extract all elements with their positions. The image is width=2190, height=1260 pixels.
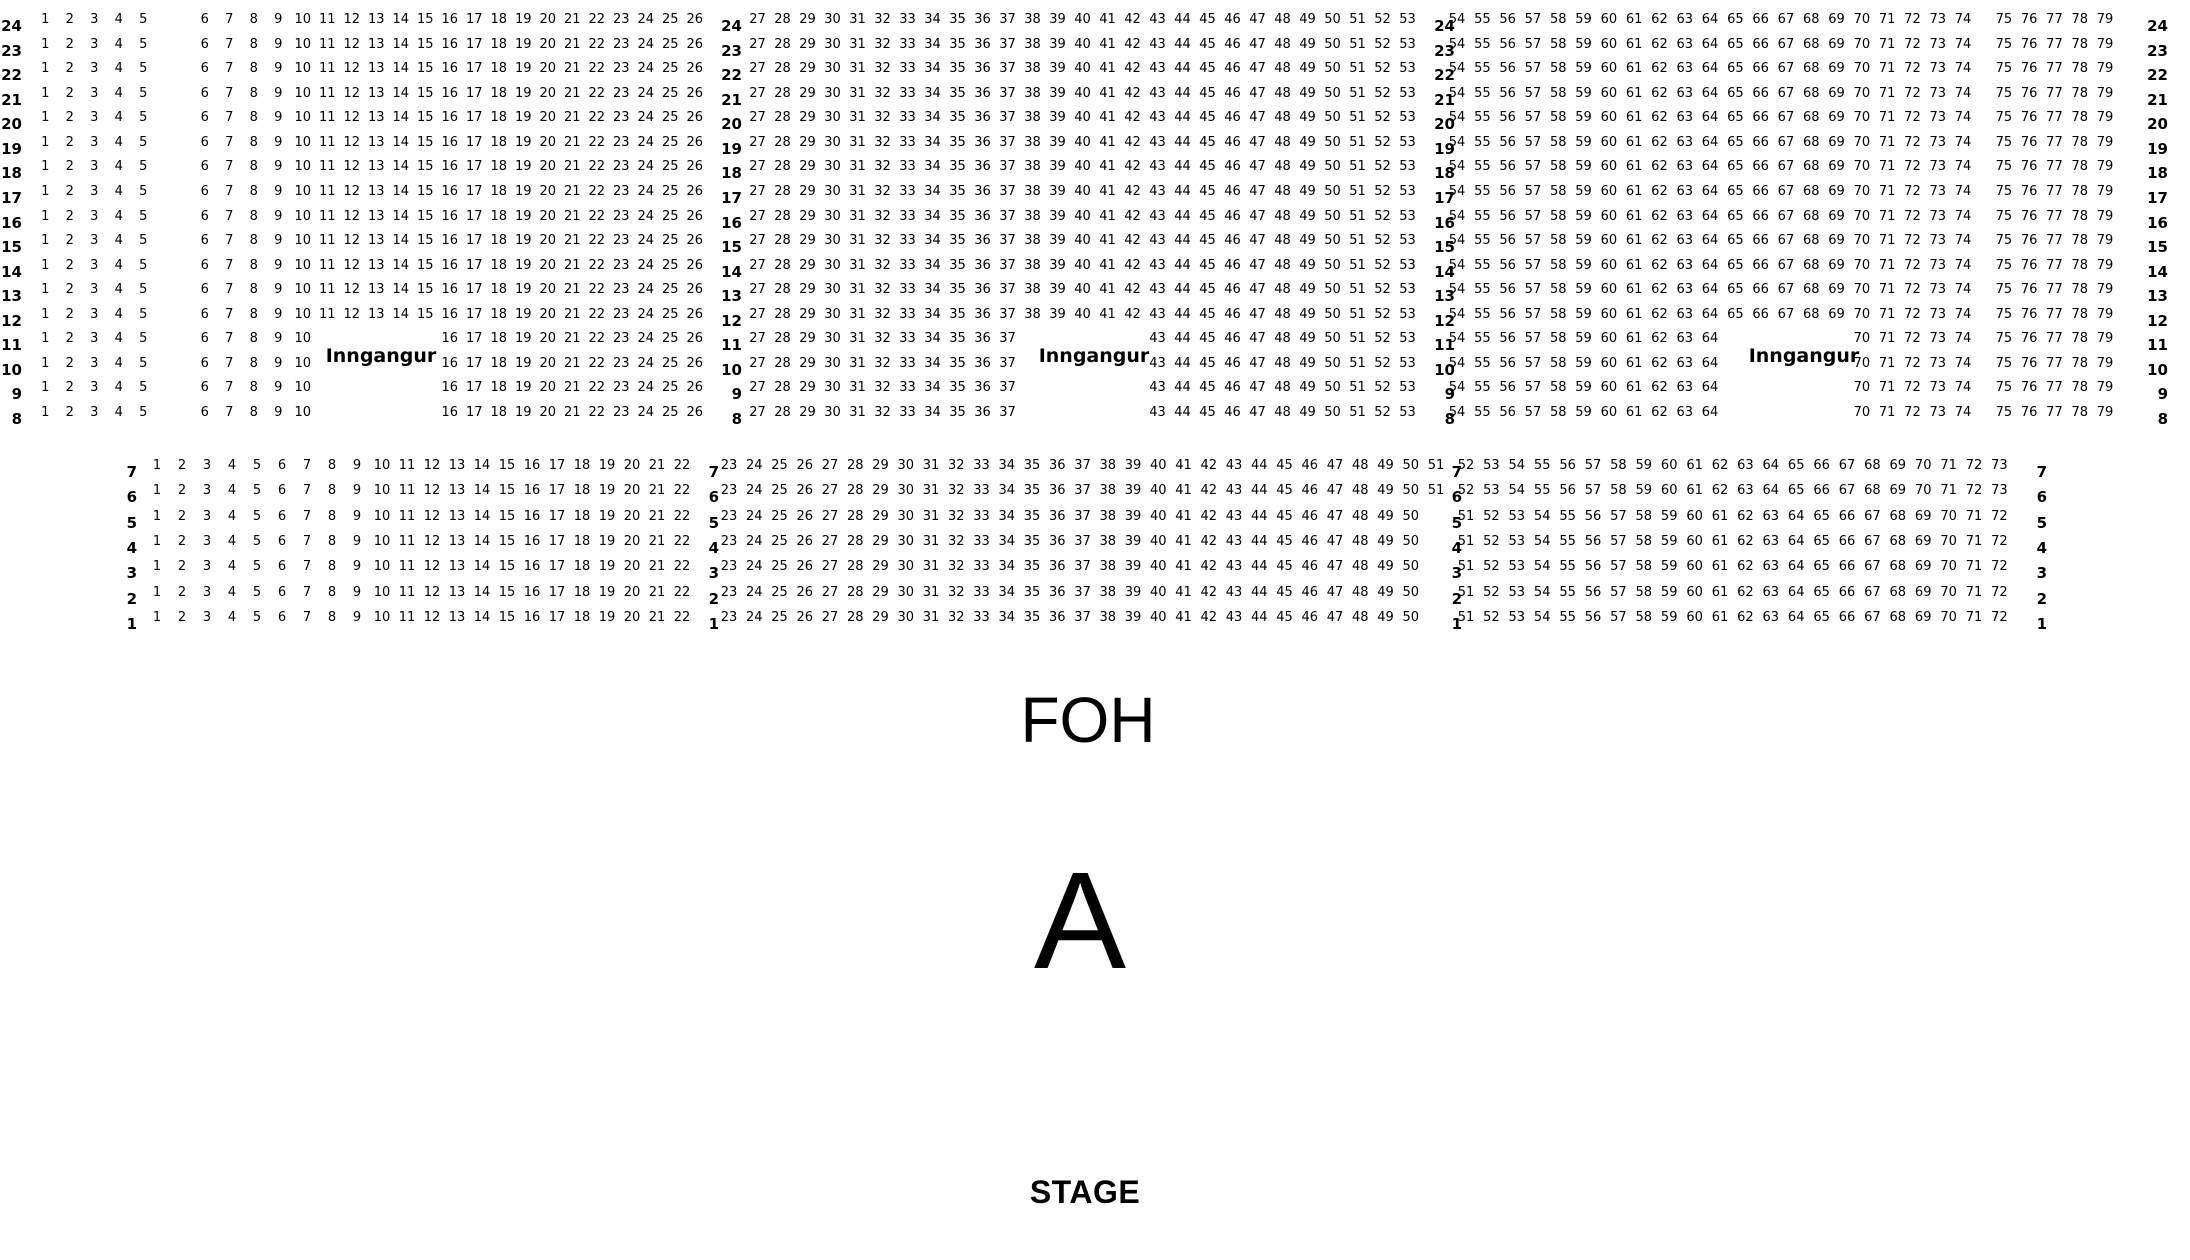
seat-22-45[interactable]: 45 xyxy=(1195,62,1220,75)
seat-14-44[interactable]: 44 xyxy=(1170,259,1195,272)
seat-4-51[interactable]: 51 xyxy=(1453,535,1478,548)
seat-23-59[interactable]: 59 xyxy=(1571,38,1596,51)
seat-13-14[interactable]: 14 xyxy=(389,283,414,296)
seat-8-36[interactable]: 36 xyxy=(970,406,995,419)
seat-19-36[interactable]: 36 xyxy=(970,136,995,149)
seat-5-29[interactable]: 29 xyxy=(868,510,893,523)
seat-6-10[interactable]: 10 xyxy=(370,484,395,497)
seat-6-39[interactable]: 39 xyxy=(1120,484,1145,497)
seat-24-25[interactable]: 25 xyxy=(658,13,683,26)
seat-10-59[interactable]: 59 xyxy=(1571,357,1596,370)
seat-23-32[interactable]: 32 xyxy=(870,38,895,51)
seat-6-44[interactable]: 44 xyxy=(1247,484,1272,497)
seat-3-53[interactable]: 53 xyxy=(1504,560,1529,573)
seat-17-68[interactable]: 68 xyxy=(1799,185,1824,198)
seat-15-32[interactable]: 32 xyxy=(870,234,895,247)
seat-3-51[interactable]: 51 xyxy=(1453,560,1478,573)
seat-20-65[interactable]: 65 xyxy=(1723,111,1748,124)
seat-4-11[interactable]: 11 xyxy=(395,535,420,548)
seat-20-6[interactable]: 6 xyxy=(193,111,218,124)
seat-8-50[interactable]: 50 xyxy=(1320,406,1345,419)
seat-5-51[interactable]: 51 xyxy=(1453,510,1478,523)
seat-2-66[interactable]: 66 xyxy=(1834,586,1859,599)
seat-6-12[interactable]: 12 xyxy=(420,484,445,497)
seat-3-27[interactable]: 27 xyxy=(817,560,842,573)
seat-4-71[interactable]: 71 xyxy=(1961,535,1986,548)
seat-18-79[interactable]: 79 xyxy=(2092,160,2117,173)
seat-2-70[interactable]: 70 xyxy=(1936,586,1961,599)
seat-1-60[interactable]: 60 xyxy=(1682,611,1707,624)
seat-21-43[interactable]: 43 xyxy=(1145,87,1170,100)
seat-18-31[interactable]: 31 xyxy=(845,160,870,173)
seat-8-49[interactable]: 49 xyxy=(1295,406,1320,419)
seat-15-62[interactable]: 62 xyxy=(1647,234,1672,247)
seat-17-43[interactable]: 43 xyxy=(1145,185,1170,198)
seat-23-72[interactable]: 72 xyxy=(1900,38,1925,51)
seat-21-46[interactable]: 46 xyxy=(1220,87,1245,100)
seat-4-42[interactable]: 42 xyxy=(1196,535,1221,548)
seat-7-36[interactable]: 36 xyxy=(1045,459,1070,472)
seat-14-74[interactable]: 74 xyxy=(1950,259,1975,272)
seat-23-28[interactable]: 28 xyxy=(770,38,795,51)
seat-3-21[interactable]: 21 xyxy=(645,560,670,573)
seat-4-26[interactable]: 26 xyxy=(792,535,817,548)
seat-10-21[interactable]: 21 xyxy=(560,357,585,370)
seat-4-60[interactable]: 60 xyxy=(1682,535,1707,548)
seat-18-44[interactable]: 44 xyxy=(1170,160,1195,173)
seat-10-71[interactable]: 71 xyxy=(1875,357,1900,370)
seat-19-70[interactable]: 70 xyxy=(1849,136,1874,149)
seat-24-40[interactable]: 40 xyxy=(1070,13,1095,26)
seat-8-71[interactable]: 71 xyxy=(1875,406,1900,419)
seat-21-27[interactable]: 27 xyxy=(745,87,770,100)
seat-17-74[interactable]: 74 xyxy=(1950,185,1975,198)
seat-14-61[interactable]: 61 xyxy=(1622,259,1647,272)
seat-14-57[interactable]: 57 xyxy=(1520,259,1545,272)
seat-21-61[interactable]: 61 xyxy=(1622,87,1647,100)
seat-2-6[interactable]: 6 xyxy=(270,586,295,599)
seat-1-11[interactable]: 11 xyxy=(395,611,420,624)
seat-20-44[interactable]: 44 xyxy=(1170,111,1195,124)
seat-6-53[interactable]: 53 xyxy=(1479,484,1504,497)
seat-3-30[interactable]: 30 xyxy=(893,560,918,573)
seat-10-19[interactable]: 19 xyxy=(511,357,536,370)
seat-9-2[interactable]: 2 xyxy=(58,381,83,394)
seat-19-25[interactable]: 25 xyxy=(658,136,683,149)
seat-6-43[interactable]: 43 xyxy=(1221,484,1246,497)
seat-10-50[interactable]: 50 xyxy=(1320,357,1345,370)
seat-13-34[interactable]: 34 xyxy=(920,283,945,296)
seat-17-47[interactable]: 47 xyxy=(1245,185,1270,198)
seat-12-28[interactable]: 28 xyxy=(770,308,795,321)
seat-21-26[interactable]: 26 xyxy=(683,87,708,100)
seat-18-65[interactable]: 65 xyxy=(1723,160,1748,173)
seat-24-76[interactable]: 76 xyxy=(2017,13,2042,26)
seat-7-57[interactable]: 57 xyxy=(1580,459,1605,472)
seat-16-15[interactable]: 15 xyxy=(413,210,438,223)
seat-24-14[interactable]: 14 xyxy=(389,13,414,26)
seat-15-24[interactable]: 24 xyxy=(634,234,659,247)
seat-20-32[interactable]: 32 xyxy=(870,111,895,124)
seat-22-49[interactable]: 49 xyxy=(1295,62,1320,75)
seat-8-3[interactable]: 3 xyxy=(82,406,107,419)
seat-11-29[interactable]: 29 xyxy=(795,332,820,345)
seat-15-9[interactable]: 9 xyxy=(266,234,291,247)
seat-12-51[interactable]: 51 xyxy=(1345,308,1370,321)
seat-12-43[interactable]: 43 xyxy=(1145,308,1170,321)
seat-14-22[interactable]: 22 xyxy=(585,259,610,272)
seat-9-48[interactable]: 48 xyxy=(1270,381,1295,394)
seat-14-13[interactable]: 13 xyxy=(364,259,389,272)
seat-10-28[interactable]: 28 xyxy=(770,357,795,370)
seat-21-48[interactable]: 48 xyxy=(1270,87,1295,100)
seat-20-48[interactable]: 48 xyxy=(1270,111,1295,124)
seat-2-29[interactable]: 29 xyxy=(868,586,893,599)
seat-1-52[interactable]: 52 xyxy=(1479,611,1504,624)
seat-23-7[interactable]: 7 xyxy=(217,38,242,51)
seat-22-22[interactable]: 22 xyxy=(585,62,610,75)
seat-9-77[interactable]: 77 xyxy=(2042,381,2067,394)
seat-8-56[interactable]: 56 xyxy=(1495,406,1520,419)
seat-24-12[interactable]: 12 xyxy=(340,13,365,26)
seat-24-3[interactable]: 3 xyxy=(82,13,107,26)
seat-3-23[interactable]: 23 xyxy=(716,560,741,573)
seat-12-76[interactable]: 76 xyxy=(2017,308,2042,321)
seat-15-40[interactable]: 40 xyxy=(1070,234,1095,247)
seat-7-1[interactable]: 1 xyxy=(145,459,170,472)
seat-23-3[interactable]: 3 xyxy=(82,38,107,51)
seat-4-72[interactable]: 72 xyxy=(1987,535,2012,548)
seat-3-2[interactable]: 2 xyxy=(170,560,195,573)
seat-9-9[interactable]: 9 xyxy=(266,381,291,394)
seat-18-2[interactable]: 2 xyxy=(58,160,83,173)
seat-4-10[interactable]: 10 xyxy=(370,535,395,548)
seat-23-69[interactable]: 69 xyxy=(1824,38,1849,51)
seat-12-30[interactable]: 30 xyxy=(820,308,845,321)
seat-24-18[interactable]: 18 xyxy=(487,13,512,26)
seat-20-58[interactable]: 58 xyxy=(1546,111,1571,124)
seat-6-15[interactable]: 15 xyxy=(495,484,520,497)
seat-18-26[interactable]: 26 xyxy=(683,160,708,173)
seat-18-37[interactable]: 37 xyxy=(995,160,1020,173)
seat-13-44[interactable]: 44 xyxy=(1170,283,1195,296)
seat-9-29[interactable]: 29 xyxy=(795,381,820,394)
seat-7-32[interactable]: 32 xyxy=(944,459,969,472)
seat-1-45[interactable]: 45 xyxy=(1272,611,1297,624)
seat-21-18[interactable]: 18 xyxy=(487,87,512,100)
seat-1-27[interactable]: 27 xyxy=(817,611,842,624)
seat-2-61[interactable]: 61 xyxy=(1707,586,1732,599)
seat-7-26[interactable]: 26 xyxy=(792,459,817,472)
seat-12-27[interactable]: 27 xyxy=(745,308,770,321)
seat-16-57[interactable]: 57 xyxy=(1520,210,1545,223)
seat-18-32[interactable]: 32 xyxy=(870,160,895,173)
seat-18-62[interactable]: 62 xyxy=(1647,160,1672,173)
seat-6-6[interactable]: 6 xyxy=(270,484,295,497)
seat-14-18[interactable]: 18 xyxy=(487,259,512,272)
seat-22-68[interactable]: 68 xyxy=(1799,62,1824,75)
seat-2-3[interactable]: 3 xyxy=(195,586,220,599)
seat-1-40[interactable]: 40 xyxy=(1146,611,1171,624)
seat-8-52[interactable]: 52 xyxy=(1370,406,1395,419)
seat-4-35[interactable]: 35 xyxy=(1019,535,1044,548)
seat-13-41[interactable]: 41 xyxy=(1095,283,1120,296)
seat-16-71[interactable]: 71 xyxy=(1875,210,1900,223)
seat-5-46[interactable]: 46 xyxy=(1297,510,1322,523)
seat-24-31[interactable]: 31 xyxy=(845,13,870,26)
seat-20-50[interactable]: 50 xyxy=(1320,111,1345,124)
seat-20-59[interactable]: 59 xyxy=(1571,111,1596,124)
seat-15-75[interactable]: 75 xyxy=(1991,234,2016,247)
seat-24-32[interactable]: 32 xyxy=(870,13,895,26)
seat-5-23[interactable]: 23 xyxy=(716,510,741,523)
seat-4-21[interactable]: 21 xyxy=(645,535,670,548)
seat-5-31[interactable]: 31 xyxy=(918,510,943,523)
seat-7-4[interactable]: 4 xyxy=(220,459,245,472)
seat-15-54[interactable]: 54 xyxy=(1444,234,1469,247)
seat-18-11[interactable]: 11 xyxy=(315,160,340,173)
seat-5-55[interactable]: 55 xyxy=(1555,510,1580,523)
seat-19-61[interactable]: 61 xyxy=(1622,136,1647,149)
seat-17-34[interactable]: 34 xyxy=(920,185,945,198)
seat-22-76[interactable]: 76 xyxy=(2017,62,2042,75)
seat-9-3[interactable]: 3 xyxy=(82,381,107,394)
seat-12-77[interactable]: 77 xyxy=(2042,308,2067,321)
seat-23-43[interactable]: 43 xyxy=(1145,38,1170,51)
seat-20-36[interactable]: 36 xyxy=(970,111,995,124)
seat-15-10[interactable]: 10 xyxy=(291,234,316,247)
seat-2-17[interactable]: 17 xyxy=(545,586,570,599)
seat-16-20[interactable]: 20 xyxy=(536,210,561,223)
seat-1-43[interactable]: 43 xyxy=(1221,611,1246,624)
seat-7-29[interactable]: 29 xyxy=(868,459,893,472)
seat-22-48[interactable]: 48 xyxy=(1270,62,1295,75)
seat-4-32[interactable]: 32 xyxy=(944,535,969,548)
seat-18-72[interactable]: 72 xyxy=(1900,160,1925,173)
seat-16-17[interactable]: 17 xyxy=(462,210,487,223)
seat-16-40[interactable]: 40 xyxy=(1070,210,1095,223)
seat-12-6[interactable]: 6 xyxy=(193,308,218,321)
seat-4-62[interactable]: 62 xyxy=(1733,535,1758,548)
seat-18-39[interactable]: 39 xyxy=(1045,160,1070,173)
seat-6-7[interactable]: 7 xyxy=(295,484,320,497)
seat-15-7[interactable]: 7 xyxy=(217,234,242,247)
seat-16-36[interactable]: 36 xyxy=(970,210,995,223)
seat-15-69[interactable]: 69 xyxy=(1824,234,1849,247)
seat-15-50[interactable]: 50 xyxy=(1320,234,1345,247)
seat-18-71[interactable]: 71 xyxy=(1875,160,1900,173)
seat-14-38[interactable]: 38 xyxy=(1020,259,1045,272)
seat-20-51[interactable]: 51 xyxy=(1345,111,1370,124)
seat-19-68[interactable]: 68 xyxy=(1799,136,1824,149)
seat-9-72[interactable]: 72 xyxy=(1900,381,1925,394)
seat-6-65[interactable]: 65 xyxy=(1784,484,1809,497)
seat-13-45[interactable]: 45 xyxy=(1195,283,1220,296)
seat-1-38[interactable]: 38 xyxy=(1095,611,1120,624)
seat-8-8[interactable]: 8 xyxy=(242,406,267,419)
seat-7-28[interactable]: 28 xyxy=(843,459,868,472)
seat-2-53[interactable]: 53 xyxy=(1504,586,1529,599)
seat-20-34[interactable]: 34 xyxy=(920,111,945,124)
seat-13-15[interactable]: 15 xyxy=(413,283,438,296)
seat-4-53[interactable]: 53 xyxy=(1504,535,1529,548)
seat-7-25[interactable]: 25 xyxy=(767,459,792,472)
seat-16-37[interactable]: 37 xyxy=(995,210,1020,223)
seat-14-65[interactable]: 65 xyxy=(1723,259,1748,272)
seat-6-61[interactable]: 61 xyxy=(1682,484,1707,497)
seat-9-50[interactable]: 50 xyxy=(1320,381,1345,394)
seat-20-27[interactable]: 27 xyxy=(745,111,770,124)
seat-21-19[interactable]: 19 xyxy=(511,87,536,100)
seat-10-33[interactable]: 33 xyxy=(895,357,920,370)
seat-24-22[interactable]: 22 xyxy=(585,13,610,26)
seat-21-35[interactable]: 35 xyxy=(945,87,970,100)
seat-3-26[interactable]: 26 xyxy=(792,560,817,573)
seat-8-5[interactable]: 5 xyxy=(131,406,156,419)
seat-6-26[interactable]: 26 xyxy=(792,484,817,497)
seat-2-19[interactable]: 19 xyxy=(595,586,620,599)
seat-11-73[interactable]: 73 xyxy=(1925,332,1950,345)
seat-19-17[interactable]: 17 xyxy=(462,136,487,149)
seat-19-75[interactable]: 75 xyxy=(1991,136,2016,149)
seat-13-52[interactable]: 52 xyxy=(1370,283,1395,296)
seat-1-28[interactable]: 28 xyxy=(843,611,868,624)
seat-18-23[interactable]: 23 xyxy=(609,160,634,173)
seat-2-47[interactable]: 47 xyxy=(1322,586,1347,599)
seat-3-29[interactable]: 29 xyxy=(868,560,893,573)
seat-22-13[interactable]: 13 xyxy=(364,62,389,75)
seat-13-55[interactable]: 55 xyxy=(1470,283,1495,296)
seat-17-42[interactable]: 42 xyxy=(1120,185,1145,198)
seat-18-22[interactable]: 22 xyxy=(585,160,610,173)
seat-8-25[interactable]: 25 xyxy=(658,406,683,419)
seat-17-19[interactable]: 19 xyxy=(511,185,536,198)
seat-21-37[interactable]: 37 xyxy=(995,87,1020,100)
seat-19-34[interactable]: 34 xyxy=(920,136,945,149)
seat-1-31[interactable]: 31 xyxy=(918,611,943,624)
seat-10-30[interactable]: 30 xyxy=(820,357,845,370)
seat-1-15[interactable]: 15 xyxy=(495,611,520,624)
seat-15-68[interactable]: 68 xyxy=(1799,234,1824,247)
seat-13-40[interactable]: 40 xyxy=(1070,283,1095,296)
seat-24-67[interactable]: 67 xyxy=(1773,13,1798,26)
seat-4-56[interactable]: 56 xyxy=(1580,535,1605,548)
seat-13-49[interactable]: 49 xyxy=(1295,283,1320,296)
seat-15-6[interactable]: 6 xyxy=(193,234,218,247)
seat-5-1[interactable]: 1 xyxy=(145,510,170,523)
seat-15-26[interactable]: 26 xyxy=(683,234,708,247)
seat-16-38[interactable]: 38 xyxy=(1020,210,1045,223)
seat-17-18[interactable]: 18 xyxy=(487,185,512,198)
seat-23-65[interactable]: 65 xyxy=(1723,38,1748,51)
seat-6-17[interactable]: 17 xyxy=(545,484,570,497)
seat-14-58[interactable]: 58 xyxy=(1546,259,1571,272)
seat-14-78[interactable]: 78 xyxy=(2067,259,2092,272)
seat-21-66[interactable]: 66 xyxy=(1748,87,1773,100)
seat-18-78[interactable]: 78 xyxy=(2067,160,2092,173)
seat-4-58[interactable]: 58 xyxy=(1631,535,1656,548)
seat-15-61[interactable]: 61 xyxy=(1622,234,1647,247)
seat-8-7[interactable]: 7 xyxy=(217,406,242,419)
seat-7-15[interactable]: 15 xyxy=(495,459,520,472)
seat-14-67[interactable]: 67 xyxy=(1773,259,1798,272)
seat-7-6[interactable]: 6 xyxy=(270,459,295,472)
seat-12-34[interactable]: 34 xyxy=(920,308,945,321)
seat-22-55[interactable]: 55 xyxy=(1470,62,1495,75)
seat-1-19[interactable]: 19 xyxy=(595,611,620,624)
seat-4-23[interactable]: 23 xyxy=(716,535,741,548)
seat-21-40[interactable]: 40 xyxy=(1070,87,1095,100)
seat-10-77[interactable]: 77 xyxy=(2042,357,2067,370)
seat-11-26[interactable]: 26 xyxy=(683,332,708,345)
seat-12-10[interactable]: 10 xyxy=(291,308,316,321)
seat-9-17[interactable]: 17 xyxy=(462,381,487,394)
seat-12-45[interactable]: 45 xyxy=(1195,308,1220,321)
seat-7-66[interactable]: 66 xyxy=(1809,459,1834,472)
seat-14-26[interactable]: 26 xyxy=(683,259,708,272)
seat-7-52[interactable]: 52 xyxy=(1453,459,1478,472)
seat-4-28[interactable]: 28 xyxy=(843,535,868,548)
seat-9-49[interactable]: 49 xyxy=(1295,381,1320,394)
seat-5-42[interactable]: 42 xyxy=(1196,510,1221,523)
seat-24-43[interactable]: 43 xyxy=(1145,13,1170,26)
seat-16-23[interactable]: 23 xyxy=(609,210,634,223)
seat-14-16[interactable]: 16 xyxy=(438,259,463,272)
seat-16-69[interactable]: 69 xyxy=(1824,210,1849,223)
seat-13-62[interactable]: 62 xyxy=(1647,283,1672,296)
seat-6-38[interactable]: 38 xyxy=(1095,484,1120,497)
seat-1-24[interactable]: 24 xyxy=(742,611,767,624)
seat-23-54[interactable]: 54 xyxy=(1444,38,1469,51)
seat-24-63[interactable]: 63 xyxy=(1672,13,1697,26)
seat-14-32[interactable]: 32 xyxy=(870,259,895,272)
seat-1-70[interactable]: 70 xyxy=(1936,611,1961,624)
seat-9-51[interactable]: 51 xyxy=(1345,381,1370,394)
seat-6-68[interactable]: 68 xyxy=(1860,484,1885,497)
seat-16-63[interactable]: 63 xyxy=(1672,210,1697,223)
seat-14-63[interactable]: 63 xyxy=(1672,259,1697,272)
seat-19-32[interactable]: 32 xyxy=(870,136,895,149)
seat-7-68[interactable]: 68 xyxy=(1860,459,1885,472)
seat-18-54[interactable]: 54 xyxy=(1444,160,1469,173)
seat-16-53[interactable]: 53 xyxy=(1395,210,1420,223)
seat-15-13[interactable]: 13 xyxy=(364,234,389,247)
seat-12-35[interactable]: 35 xyxy=(945,308,970,321)
seat-22-37[interactable]: 37 xyxy=(995,62,1020,75)
seat-18-12[interactable]: 12 xyxy=(340,160,365,173)
seat-9-8[interactable]: 8 xyxy=(242,381,267,394)
seat-12-68[interactable]: 68 xyxy=(1799,308,1824,321)
seat-19-53[interactable]: 53 xyxy=(1395,136,1420,149)
seat-23-27[interactable]: 27 xyxy=(745,38,770,51)
seat-9-6[interactable]: 6 xyxy=(193,381,218,394)
seat-1-54[interactable]: 54 xyxy=(1530,611,1555,624)
seat-11-61[interactable]: 61 xyxy=(1622,332,1647,345)
seat-24-66[interactable]: 66 xyxy=(1748,13,1773,26)
seat-11-49[interactable]: 49 xyxy=(1295,332,1320,345)
seat-2-65[interactable]: 65 xyxy=(1809,586,1834,599)
seat-21-68[interactable]: 68 xyxy=(1799,87,1824,100)
seat-21-38[interactable]: 38 xyxy=(1020,87,1045,100)
seat-19-5[interactable]: 5 xyxy=(131,136,156,149)
seat-11-52[interactable]: 52 xyxy=(1370,332,1395,345)
seat-24-4[interactable]: 4 xyxy=(107,13,132,26)
seat-16-31[interactable]: 31 xyxy=(845,210,870,223)
seat-22-7[interactable]: 7 xyxy=(217,62,242,75)
seat-24-11[interactable]: 11 xyxy=(315,13,340,26)
seat-1-21[interactable]: 21 xyxy=(645,611,670,624)
seat-15-35[interactable]: 35 xyxy=(945,234,970,247)
